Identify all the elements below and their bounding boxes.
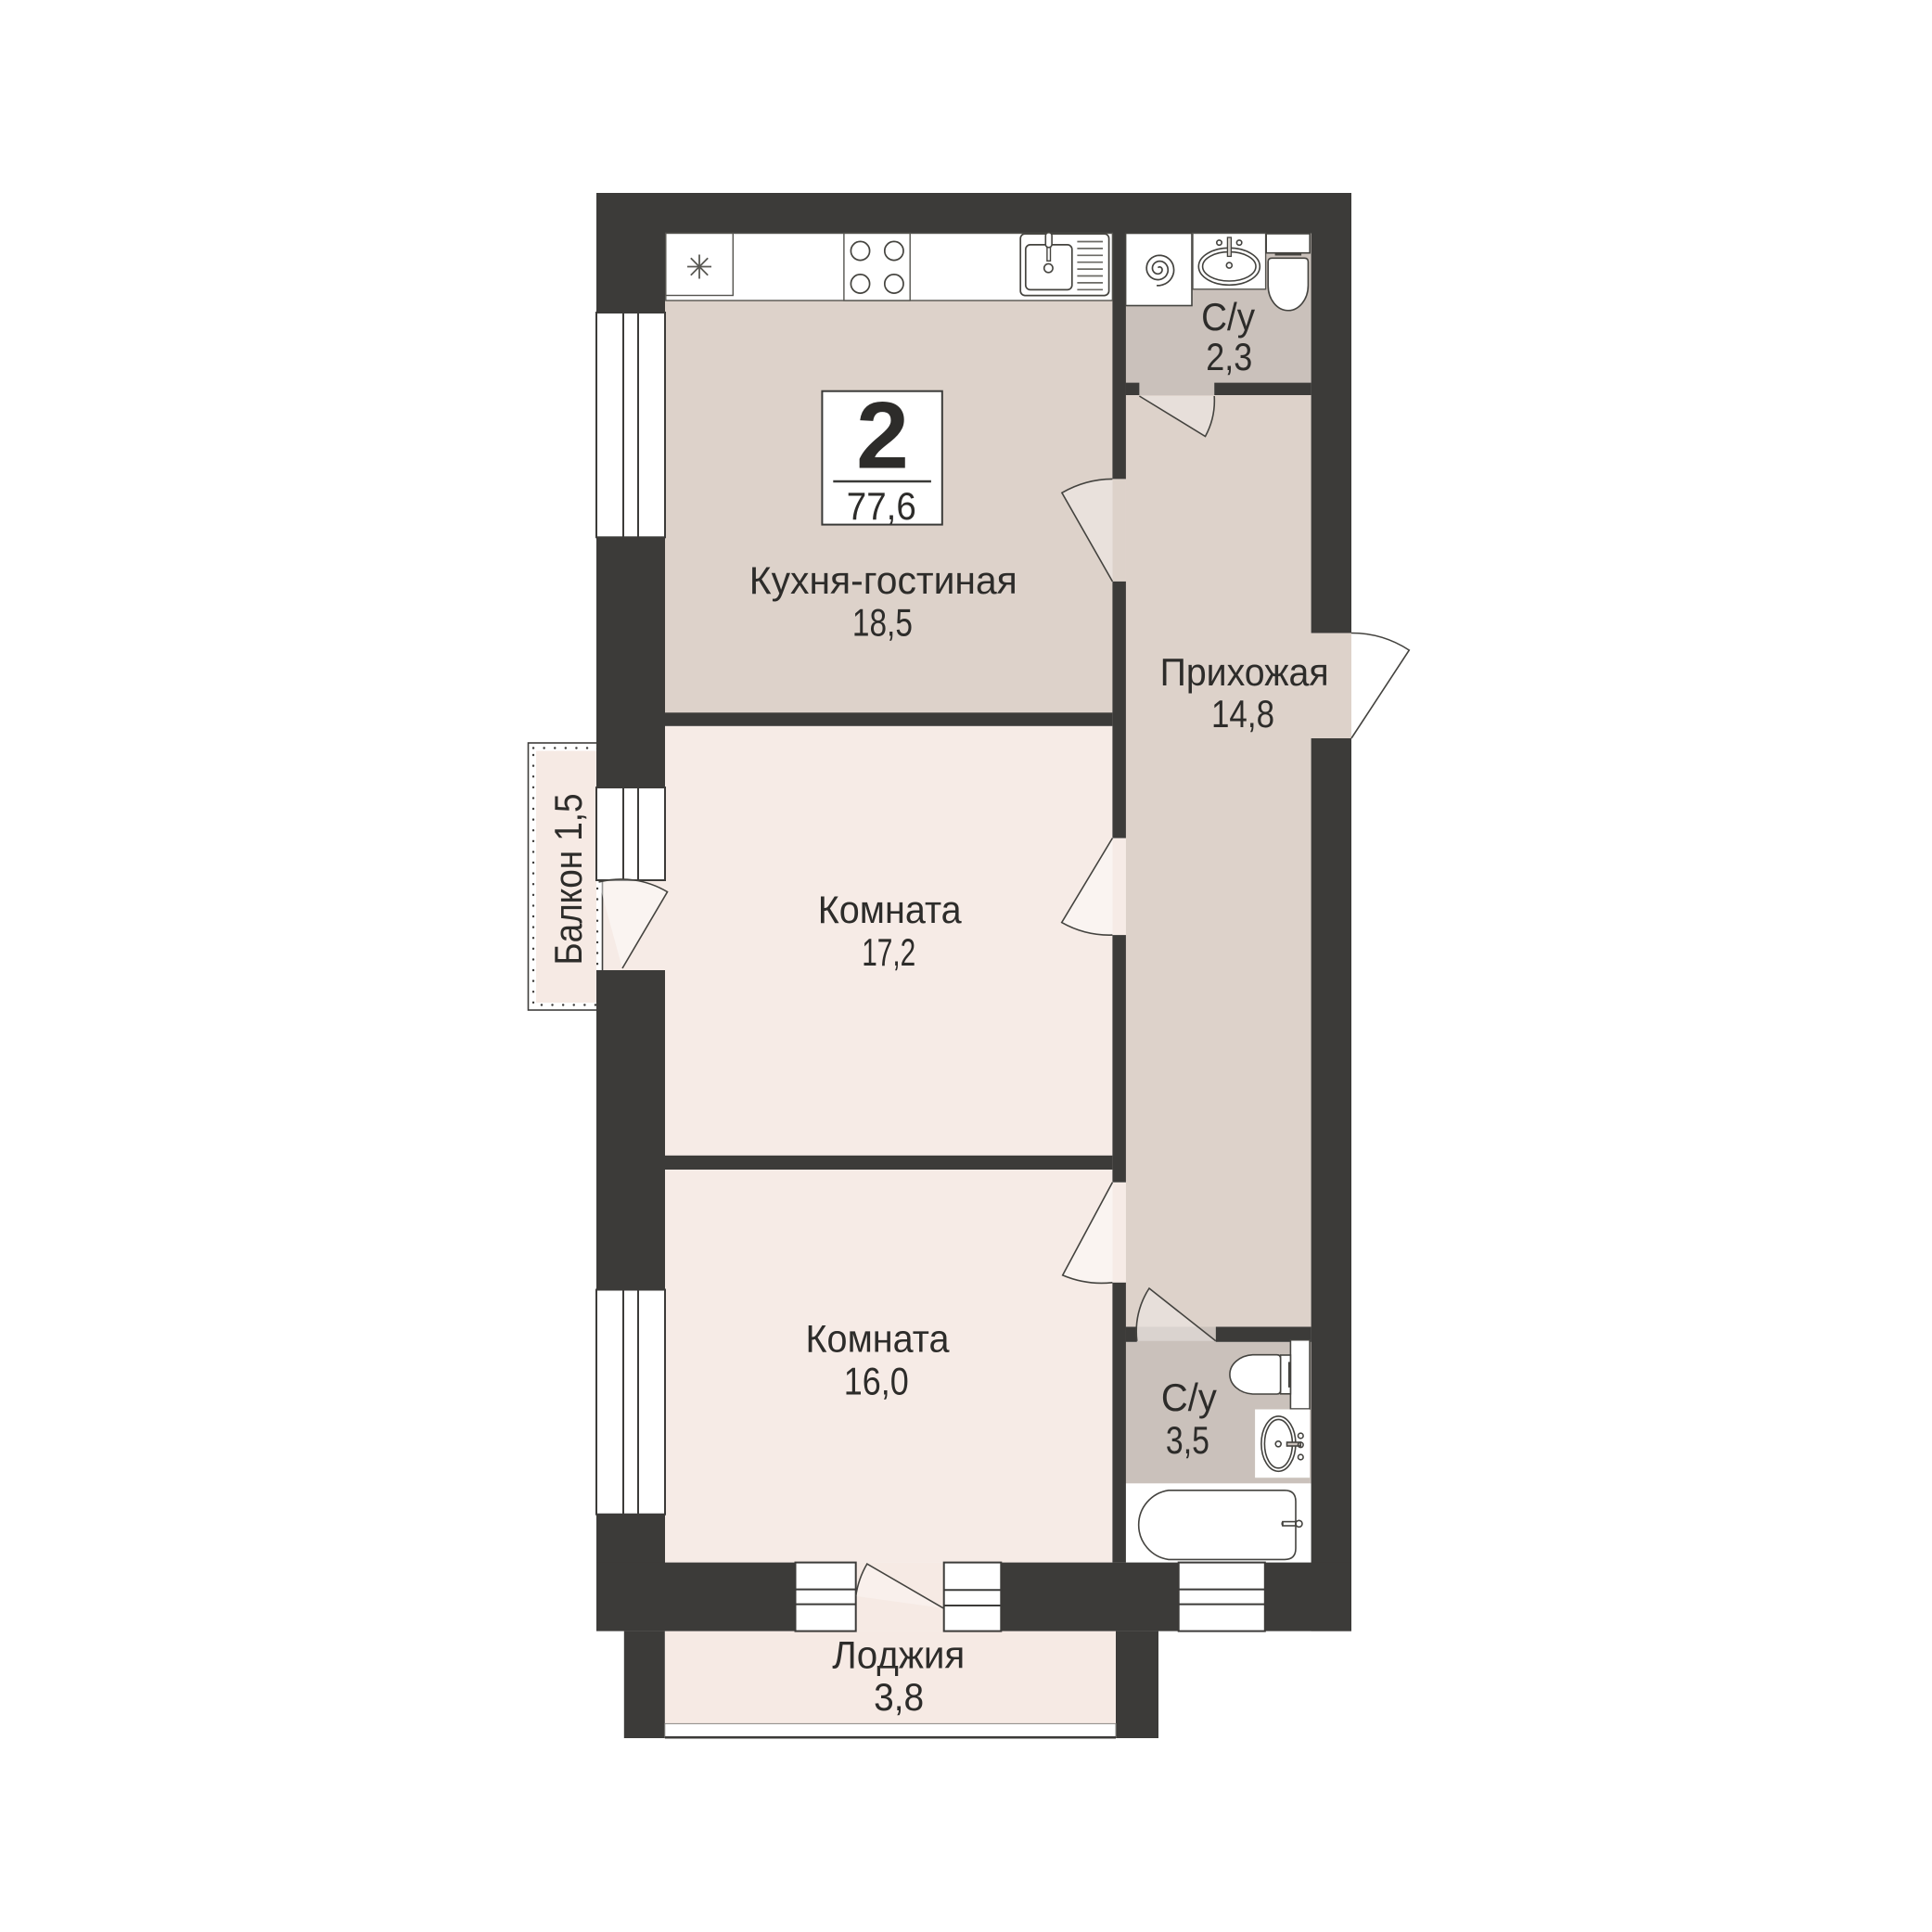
svg-text:Лоджия: Лоджия [832, 1632, 965, 1676]
svg-text:77,6: 77,6 [847, 484, 916, 528]
svg-text:17,2: 17,2 [862, 930, 915, 974]
svg-text:2: 2 [856, 383, 909, 489]
svg-text:Балкон 1,5: Балкон 1,5 [546, 794, 590, 966]
svg-text:Кухня-гостиная: Кухня-гостиная [749, 558, 1017, 602]
svg-text:Комната: Комната [806, 1317, 951, 1361]
svg-text:3,8: 3,8 [874, 1675, 924, 1719]
svg-text:16,0: 16,0 [844, 1359, 909, 1402]
svg-text:С/у: С/у [1161, 1375, 1217, 1419]
svg-text:Прихожая: Прихожая [1160, 650, 1329, 694]
svg-text:Комната: Комната [818, 888, 963, 931]
svg-text:С/у: С/у [1201, 295, 1255, 339]
svg-text:14,8: 14,8 [1211, 692, 1274, 736]
svg-text:3,5: 3,5 [1166, 1418, 1209, 1462]
svg-text:2,3: 2,3 [1206, 335, 1252, 378]
svg-text:18,5: 18,5 [852, 601, 913, 645]
